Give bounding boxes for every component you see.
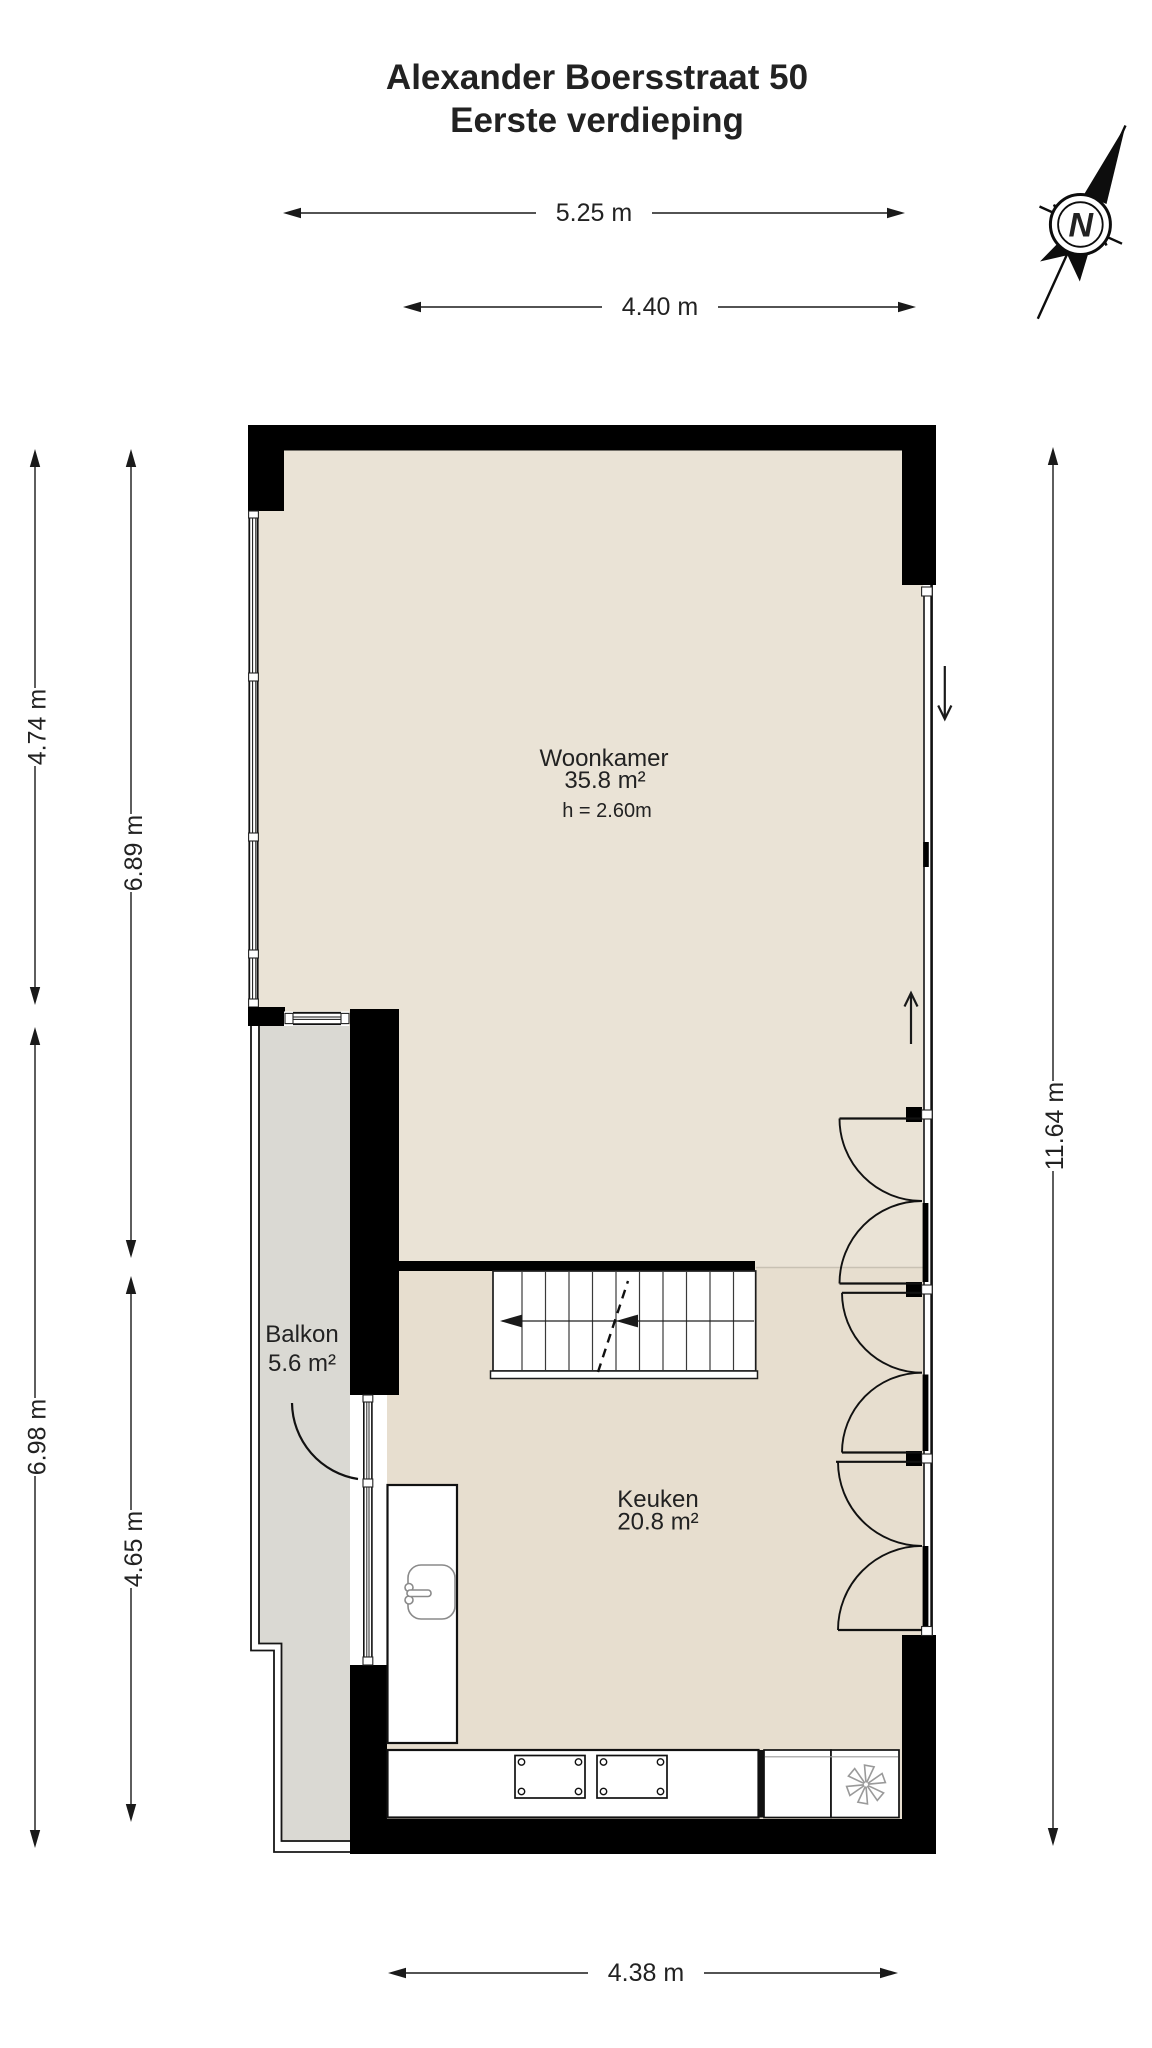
svg-text:11.64 m: 11.64 m — [1041, 1082, 1069, 1170]
svg-text:35.8 m²: 35.8 m² — [564, 767, 645, 794]
svg-text:6.98 m: 6.98 m — [24, 1399, 52, 1475]
svg-text:Balkon: Balkon — [265, 1321, 338, 1348]
svg-text:5.25 m: 5.25 m — [556, 199, 632, 227]
svg-text:N: N — [1069, 207, 1095, 245]
svg-text:4.40 m: 4.40 m — [622, 293, 698, 321]
svg-text:6.89 m: 6.89 m — [120, 815, 148, 891]
svg-text:h = 2.60m: h = 2.60m — [562, 800, 652, 822]
svg-text:4.74 m: 4.74 m — [24, 689, 52, 765]
svg-text:Eerste verdieping: Eerste verdieping — [450, 101, 744, 140]
svg-text:20.8 m²: 20.8 m² — [617, 1509, 698, 1536]
svg-text:4.65 m: 4.65 m — [120, 1511, 148, 1587]
svg-text:5.6 m²: 5.6 m² — [268, 1350, 336, 1377]
svg-text:4.38 m: 4.38 m — [608, 1959, 684, 1987]
svg-text:Alexander Boersstraat 50: Alexander Boersstraat 50 — [386, 58, 808, 97]
